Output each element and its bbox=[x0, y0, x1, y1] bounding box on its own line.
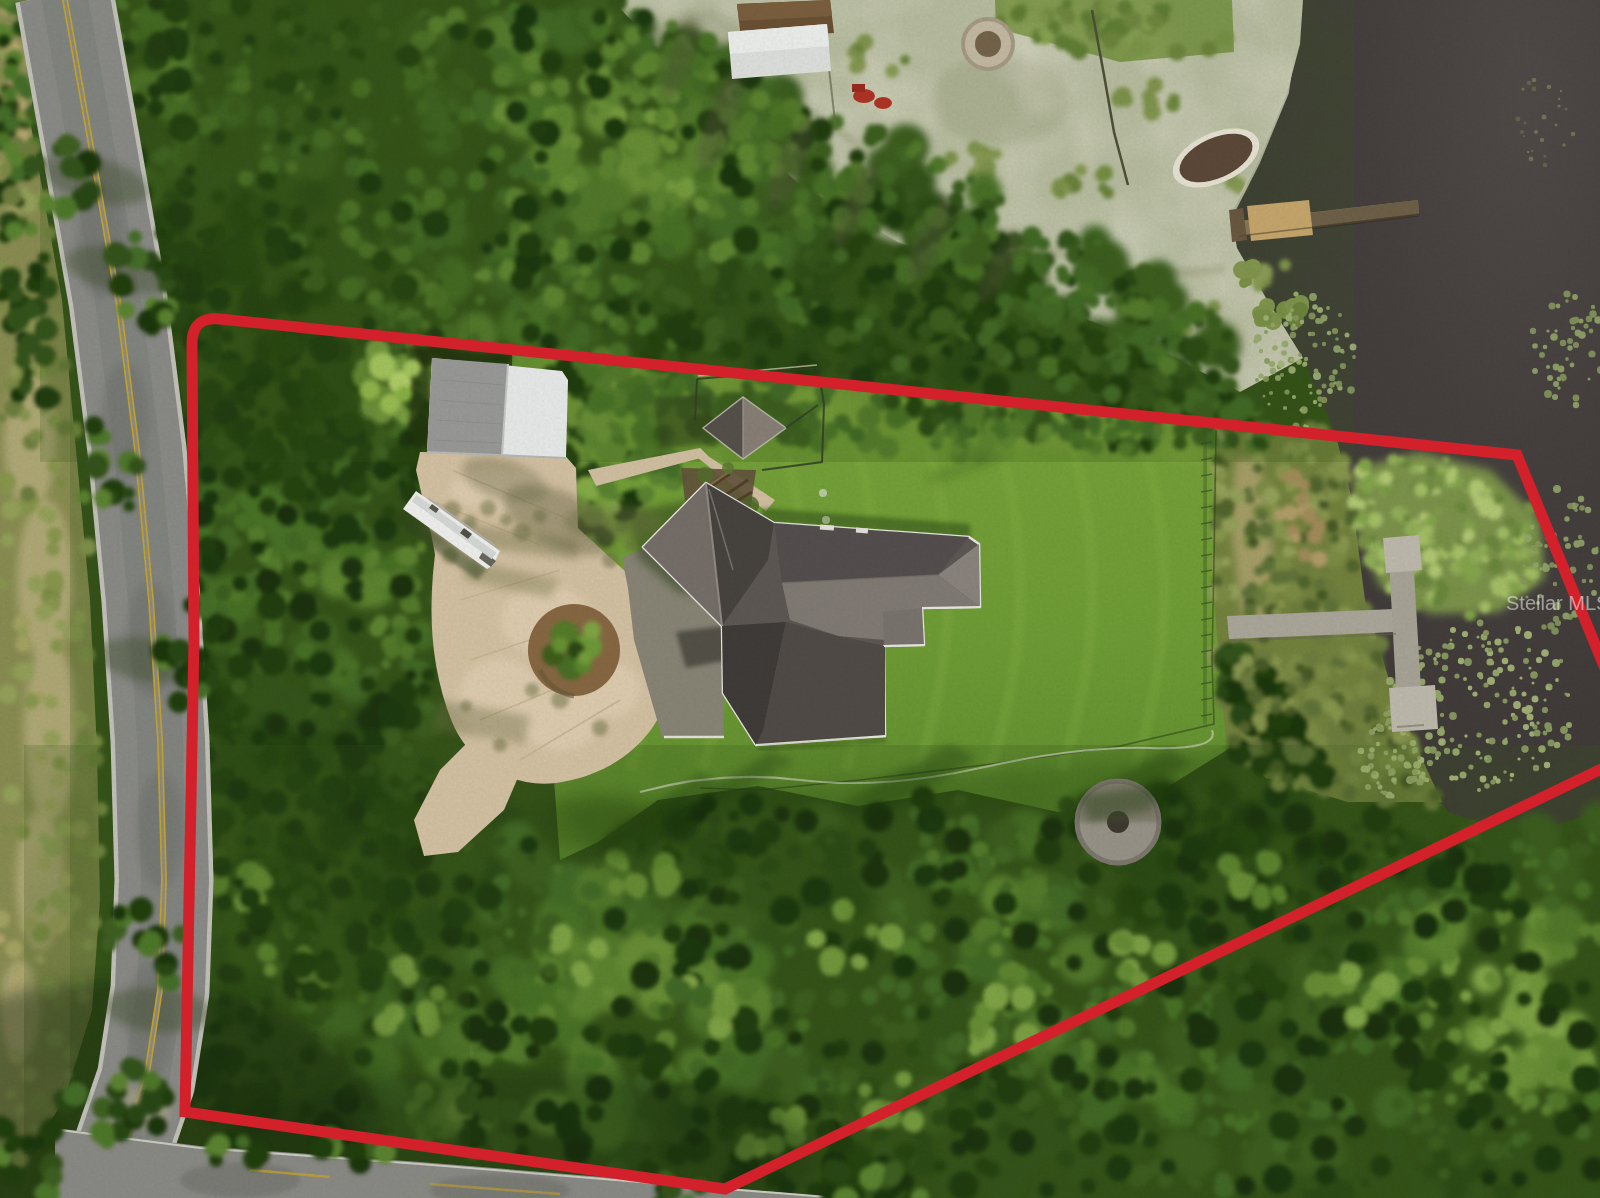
svg-text:Stellar MLS: Stellar MLS bbox=[1506, 592, 1600, 614]
